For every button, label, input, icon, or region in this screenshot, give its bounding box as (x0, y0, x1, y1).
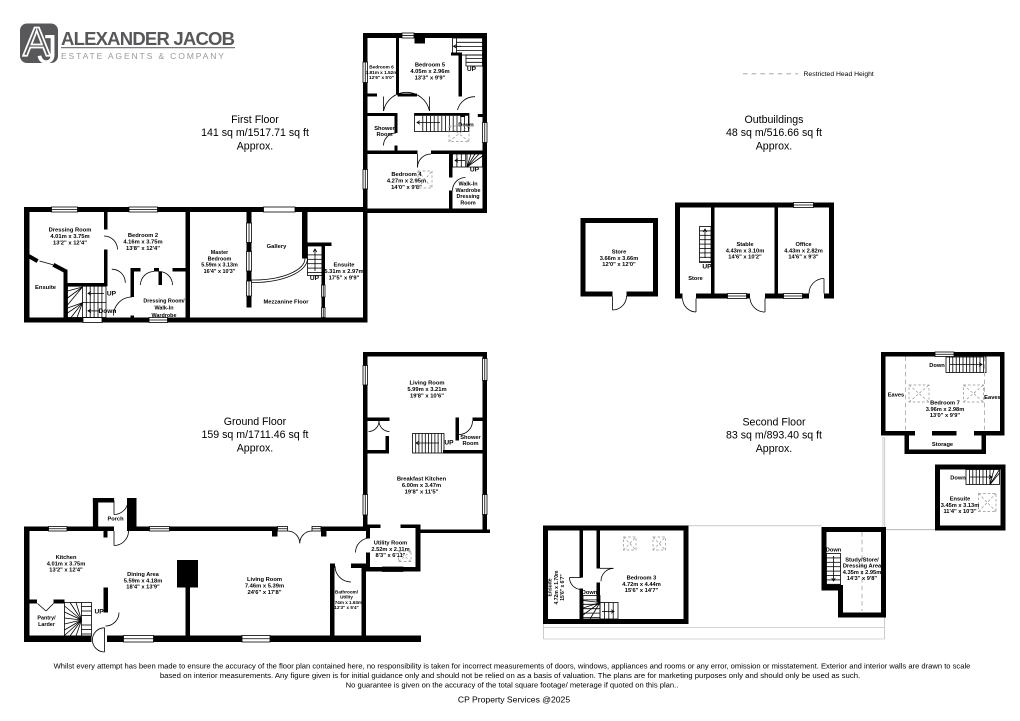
svg-text:13'0" x 9'9": 13'0" x 9'9" (930, 413, 961, 419)
svg-text:Bedroom 7: Bedroom 7 (930, 401, 960, 407)
svg-text:Second Floor: Second Floor (742, 417, 805, 429)
svg-text:Storage: Storage (932, 442, 953, 448)
svg-text:14'3" x 9'8": 14'3" x 9'8" (847, 576, 878, 582)
svg-text:Bedroom 3: Bedroom 3 (627, 576, 657, 582)
svg-text:UP: UP (107, 291, 117, 298)
svg-text:14'0" x 9'8": 14'0" x 9'8" (391, 185, 422, 191)
svg-text:2.52m x 2.11m: 2.52m x 2.11m (371, 547, 409, 553)
svg-text:19'8" x 10'6": 19'8" x 10'6" (410, 393, 444, 399)
svg-text:Eaves: Eaves (888, 393, 904, 399)
svg-text:Room: Room (460, 200, 475, 206)
svg-text:Down: Down (826, 548, 842, 554)
svg-text:13'2" x 12'4": 13'2" x 12'4" (49, 568, 83, 574)
svg-text:16'4" x 10'3": 16'4" x 10'3" (204, 269, 236, 275)
svg-text:Bedroom: Bedroom (208, 256, 232, 262)
svg-text:15'6" x 14'7": 15'6" x 14'7" (625, 588, 659, 594)
svg-text:Wardrobe: Wardrobe (456, 188, 481, 194)
svg-text:Ensuite: Ensuite (334, 263, 356, 269)
svg-text:UP: UP (310, 275, 320, 282)
svg-text:Utility Room: Utility Room (374, 541, 408, 547)
svg-text:Room: Room (462, 441, 478, 447)
svg-text:4.05m x 2.96m: 4.05m x 2.96m (410, 69, 449, 75)
svg-text:J: J (37, 26, 58, 72)
svg-text:8'3" x 6'11": 8'3" x 6'11" (376, 553, 406, 559)
svg-text:Approx.: Approx. (756, 443, 793, 455)
svg-text:4.16m x 3.75m: 4.16m x 3.75m (123, 239, 162, 245)
svg-text:Living Room: Living Room (409, 381, 444, 387)
svg-text:14'6" x 10'2": 14'6" x 10'2" (728, 255, 762, 261)
svg-text:Office: Office (795, 242, 811, 248)
svg-text:Porch: Porch (107, 517, 124, 523)
svg-text:Bedroom 5: Bedroom 5 (415, 63, 446, 69)
svg-text:UP: UP (702, 264, 712, 271)
svg-text:4.27m x 2.95m: 4.27m x 2.95m (387, 178, 426, 184)
svg-text:4.72m x 1.70m: 4.72m x 1.70m (554, 570, 560, 604)
svg-text:UP: UP (444, 440, 454, 447)
svg-text:13'3" x 9'9": 13'3" x 9'9" (415, 75, 446, 81)
svg-text:Stable: Stable (736, 242, 753, 248)
svg-text:Approx.: Approx. (756, 140, 793, 152)
svg-text:Wardrobe: Wardrobe (152, 313, 177, 319)
svg-text:5.59m x 3.13m: 5.59m x 3.13m (201, 263, 238, 269)
svg-text:Ensuite: Ensuite (950, 497, 971, 503)
svg-text:Bedroom 2: Bedroom 2 (128, 233, 158, 239)
svg-text:UP: UP (95, 609, 105, 616)
svg-text:based on interior measurements: based on interior measurements. Any figu… (160, 671, 860, 680)
svg-text:Larder: Larder (38, 622, 56, 628)
svg-text:159 sq m/1711.46 sq ft: 159 sq m/1711.46 sq ft (202, 429, 309, 441)
svg-text:Mezzanine Floor: Mezzanine Floor (263, 300, 309, 306)
svg-text:3.66m x 3.66m: 3.66m x 3.66m (600, 256, 639, 262)
svg-text:Shower: Shower (374, 126, 395, 132)
svg-text:15'6" x 6'7": 15'6" x 6'7" (560, 574, 566, 601)
svg-text:ALEXANDER JACOB: ALEXANDER JACOB (61, 28, 235, 49)
svg-text:Dining Area: Dining Area (127, 572, 160, 578)
svg-text:17'5" x 9'9": 17'5" x 9'9" (329, 275, 360, 281)
svg-text:13'8" x 12'4": 13'8" x 12'4" (126, 246, 160, 252)
svg-text:5.99m x 3.21m: 5.99m x 3.21m (407, 387, 446, 393)
svg-text:Down: Down (582, 590, 598, 596)
svg-text:18'4" x 13'9": 18'4" x 13'9" (126, 585, 160, 591)
svg-text:83 sq m/893.40 sq ft: 83 sq m/893.40 sq ft (726, 430, 822, 442)
svg-text:12'0" x 12'0": 12'0" x 12'0" (602, 262, 636, 268)
svg-text:3.81m x 1.52m: 3.81m x 1.52m (366, 70, 398, 75)
svg-text:Kitchen: Kitchen (56, 555, 77, 561)
svg-text:Eaves: Eaves (984, 395, 1000, 401)
svg-text:24'6" x 17'8": 24'6" x 17'8" (247, 590, 281, 596)
svg-text:6.00m x 3.47m: 6.00m x 3.47m (402, 483, 441, 489)
svg-text:12'3" x 5'4": 12'3" x 5'4" (334, 605, 358, 610)
svg-text:7.46m x 5.39m: 7.46m x 5.39m (245, 583, 284, 589)
svg-text:19'8" x 11'5": 19'8" x 11'5" (405, 489, 439, 495)
svg-text:Down: Down (929, 363, 945, 369)
svg-text:4.01m x 3.75m: 4.01m x 3.75m (50, 234, 89, 240)
svg-text:Pantry/: Pantry/ (37, 616, 56, 622)
svg-text:Ground Floor: Ground Floor (224, 416, 287, 428)
svg-text:Approx.: Approx. (237, 140, 274, 152)
svg-text:141 sq m/1517.71 sq ft: 141 sq m/1517.71 sq ft (201, 127, 309, 139)
svg-text:Whilst every attempt has been: Whilst every attempt has been made to en… (54, 662, 971, 671)
svg-text:UP: UP (467, 66, 477, 73)
svg-text:Breakfast Kitchen: Breakfast Kitchen (397, 477, 447, 483)
svg-text:3.96m x 2.98m: 3.96m x 2.98m (926, 407, 965, 413)
svg-text:Ensuite: Ensuite (35, 285, 57, 291)
svg-text:14'6" x 9'3": 14'6" x 9'3" (788, 255, 819, 261)
svg-text:Walk-In: Walk-In (459, 182, 478, 188)
svg-text:Dressing Room/: Dressing Room/ (143, 298, 185, 304)
svg-text:UP: UP (470, 167, 480, 174)
svg-text:13'2" x 12'4": 13'2" x 12'4" (53, 240, 87, 246)
svg-text:5.59m x 4.18m: 5.59m x 4.18m (124, 578, 163, 584)
svg-text:CP Property Services @2025: CP Property Services @2025 (458, 694, 570, 704)
svg-text:ESTATE AGENTS & COMPANY: ESTATE AGENTS & COMPANY (61, 51, 227, 61)
svg-text:11'4" x 10'3": 11'4" x 10'3" (943, 509, 976, 515)
svg-text:4.35m x 2.95m: 4.35m x 2.95m (843, 570, 882, 576)
svg-text:3.45m x 3.13m: 3.45m x 3.13m (941, 503, 980, 509)
svg-text:Room: Room (376, 132, 392, 138)
svg-text:Dressing: Dressing (456, 194, 479, 200)
svg-text:4.01m x 3.75m: 4.01m x 3.75m (47, 561, 86, 567)
svg-text:Store: Store (612, 250, 627, 256)
svg-text:Store: Store (688, 276, 703, 282)
svg-text:Ensuite: Ensuite (548, 578, 554, 596)
svg-text:Master: Master (211, 250, 229, 256)
svg-text:Down: Down (458, 123, 474, 129)
svg-text:12'6" x 5'0": 12'6" x 5'0" (369, 75, 394, 80)
svg-text:Study/Store/: Study/Store/ (845, 558, 879, 564)
svg-text:4.72m x 4.44m: 4.72m x 4.44m (622, 582, 661, 588)
svg-text:Outbuildings: Outbuildings (745, 114, 804, 126)
svg-text:Dressing Area: Dressing Area (843, 564, 882, 570)
svg-text:Dressing Room: Dressing Room (49, 228, 92, 234)
svg-text:5.31m x 2.97m: 5.31m x 2.97m (324, 269, 363, 275)
svg-text:Walk-In: Walk-In (155, 306, 174, 312)
svg-text:Shower: Shower (460, 435, 481, 441)
svg-text:Living Room: Living Room (247, 577, 282, 583)
svg-text:Down: Down (950, 476, 966, 482)
svg-text:4.43m x 3.10m: 4.43m x 3.10m (726, 248, 765, 254)
svg-text:Restricted Head Height: Restricted Head Height (804, 71, 874, 78)
svg-text:4.43m x 2.82m: 4.43m x 2.82m (784, 248, 823, 254)
svg-text:48 sq m/516.66 sq ft: 48 sq m/516.66 sq ft (726, 127, 822, 139)
svg-text:No guarantee is given on the a: No guarantee is given on the accuracy of… (346, 681, 679, 690)
svg-text:First Floor: First Floor (231, 114, 279, 126)
svg-text:Approx.: Approx. (237, 442, 274, 454)
svg-text:Bedroom 6: Bedroom 6 (369, 65, 394, 70)
svg-text:Gallery: Gallery (267, 244, 287, 250)
